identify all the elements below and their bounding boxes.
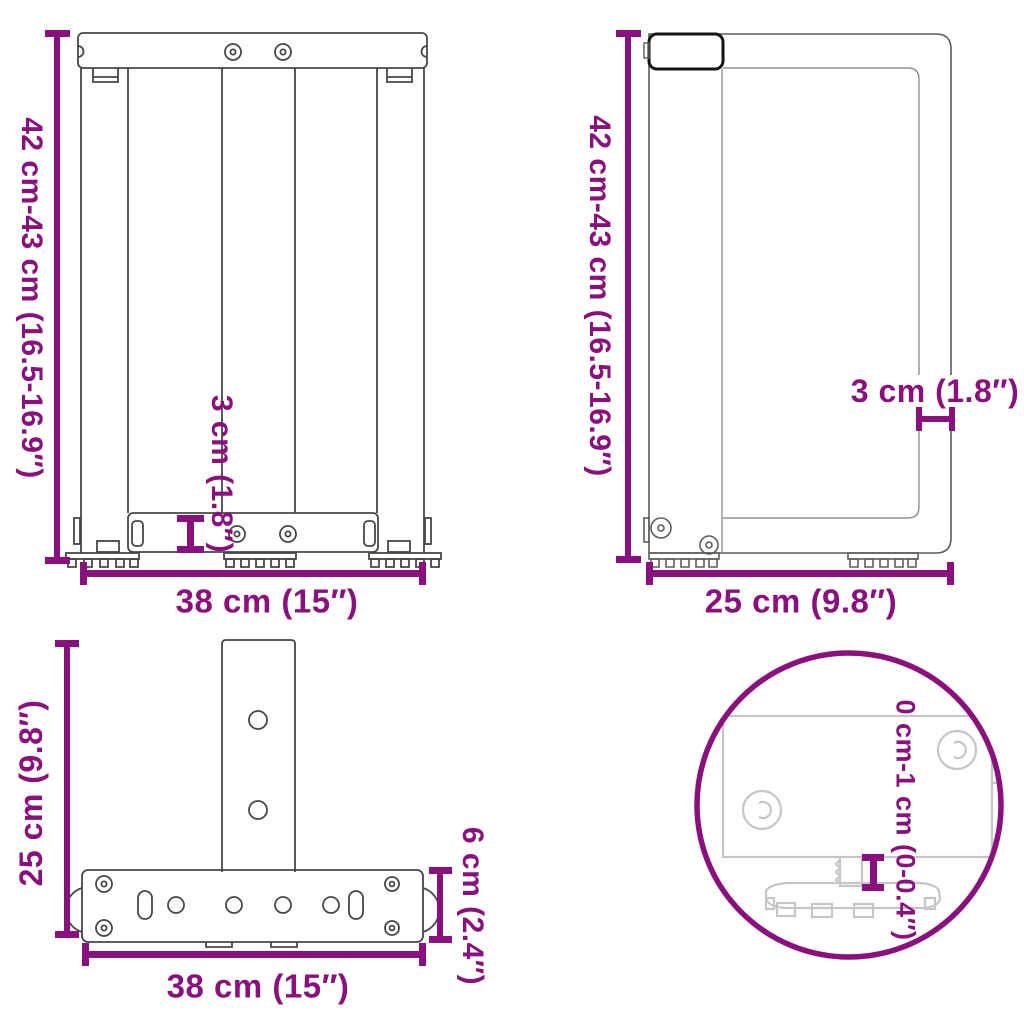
- side-outer-frame: [649, 34, 951, 553]
- front-crossbar-slot-left: [132, 521, 143, 546]
- side-foot-screws: [651, 518, 718, 554]
- side-inner-frame: [723, 68, 919, 518]
- top-view-drawing: [66, 640, 440, 947]
- front-plate-screws: [225, 44, 291, 60]
- front-crossbar-slot-right: [364, 521, 375, 546]
- front-width-label: 38 cm (15″): [176, 585, 359, 618]
- front-bar-thickness-label: 3 cm (1.8″): [206, 395, 236, 553]
- front-foot-mount-right: [388, 541, 410, 552]
- front-columns: [81, 68, 424, 553]
- front-crossbar-screws: [229, 526, 296, 542]
- top-width-label: 38 cm (15″): [167, 970, 350, 1003]
- front-view-drawing: [66, 33, 441, 567]
- front-plate-notches: [78, 46, 427, 57]
- front-top-plate: [78, 33, 427, 68]
- front-crossbar: [128, 513, 378, 552]
- front-foot-mount-left: [97, 541, 119, 552]
- side-serrated-feet: [649, 553, 918, 567]
- top-slot-left: [138, 891, 152, 919]
- front-hook-tabs: [93, 68, 412, 82]
- top-column-holes: [249, 711, 267, 819]
- dimension-diagram: 42 cm-43 cm (16.5-16.9″) 38 cm (15″) 3 c…: [0, 0, 1024, 1024]
- detail-screws: [743, 731, 976, 829]
- top-bar-height-label: 6 cm (2.4″): [457, 827, 487, 985]
- front-serrated-feet: [66, 553, 441, 567]
- top-foot-disc-right: [423, 888, 439, 932]
- top-foot-bar: [82, 870, 423, 942]
- side-height-label: 42 cm-43 cm (16.5-16.9″): [584, 115, 614, 477]
- side-top-bracket: [649, 34, 723, 69]
- detail-threaded-stem: [840, 858, 862, 886]
- side-edge-tab: [644, 518, 649, 542]
- top-column: [222, 640, 295, 872]
- detail-adjust-range-label: 0 cm-1 cm (0-0.4″): [892, 699, 919, 940]
- front-side-tab-right: [425, 518, 431, 544]
- side-width-label: 25 cm (9.8″): [705, 585, 897, 618]
- top-bar-holes: [168, 897, 339, 913]
- top-depth-label: 25 cm (9.8″): [15, 700, 47, 887]
- top-corner-screws: [96, 876, 399, 936]
- side-view-dimension-lines: [616, 30, 955, 585]
- side-view-drawing: [644, 34, 951, 567]
- detail-dimension-marker: [862, 854, 884, 891]
- front-side-tab-left: [74, 518, 80, 544]
- line-drawing: [0, 0, 1024, 1024]
- side-thickness-label: 3 cm (1.8″): [848, 375, 1022, 407]
- top-slot-right: [349, 891, 363, 919]
- front-height-label: 42 cm-43 cm (16.5-16.9″): [16, 117, 46, 479]
- detail-leg-corner: [723, 716, 992, 857]
